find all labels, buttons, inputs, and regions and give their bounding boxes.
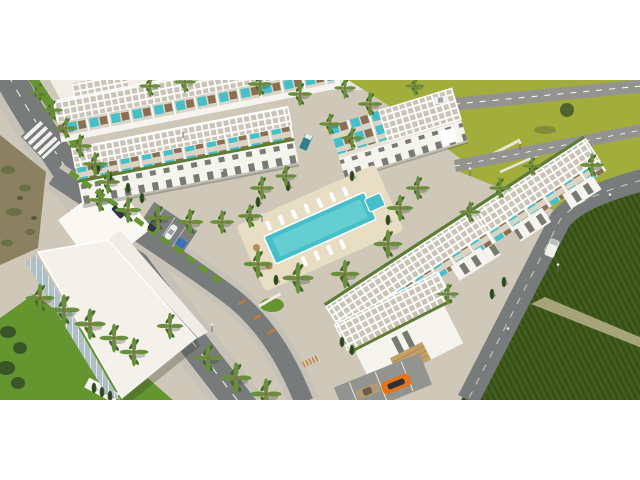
screenshot-canvas — [0, 0, 640, 480]
aerial-render-photo — [0, 80, 640, 400]
tree — [560, 103, 574, 117]
white-car-highway — [434, 96, 449, 104]
